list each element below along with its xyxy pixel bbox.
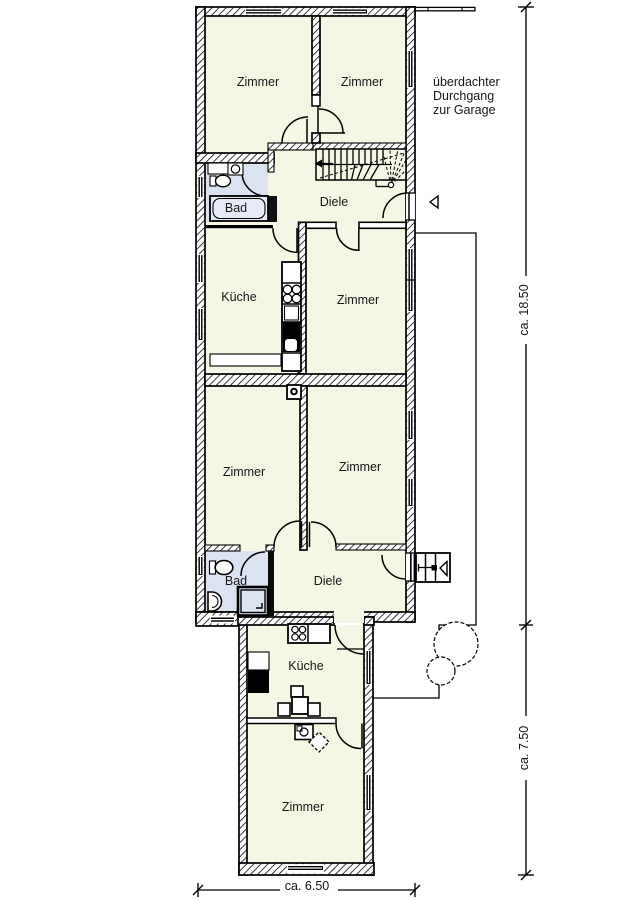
svg-text:Zimmer: Zimmer [339, 460, 381, 474]
svg-text:ca. 7.50: ca. 7.50 [517, 726, 531, 771]
svg-text:Zimmer: Zimmer [341, 75, 383, 89]
svg-text:Bad: Bad [225, 574, 247, 588]
svg-text:Diele: Diele [314, 574, 343, 588]
svg-text:Bad: Bad [225, 201, 247, 215]
svg-text:Küche: Küche [221, 290, 256, 304]
svg-text:überdachter: überdachter [433, 75, 500, 89]
svg-text:Zimmer: Zimmer [282, 800, 324, 814]
svg-text:Zimmer: Zimmer [237, 75, 279, 89]
svg-text:zur Garage: zur Garage [433, 103, 496, 117]
svg-text:ca. 6.50: ca. 6.50 [285, 879, 330, 893]
svg-text:Küche: Küche [288, 659, 323, 673]
svg-text:Zimmer: Zimmer [223, 465, 265, 479]
svg-text:Diele: Diele [320, 195, 349, 209]
svg-text:Zimmer: Zimmer [337, 293, 379, 307]
svg-text:ca. 18.50: ca. 18.50 [517, 284, 531, 335]
svg-text:Durchgang: Durchgang [433, 89, 494, 103]
